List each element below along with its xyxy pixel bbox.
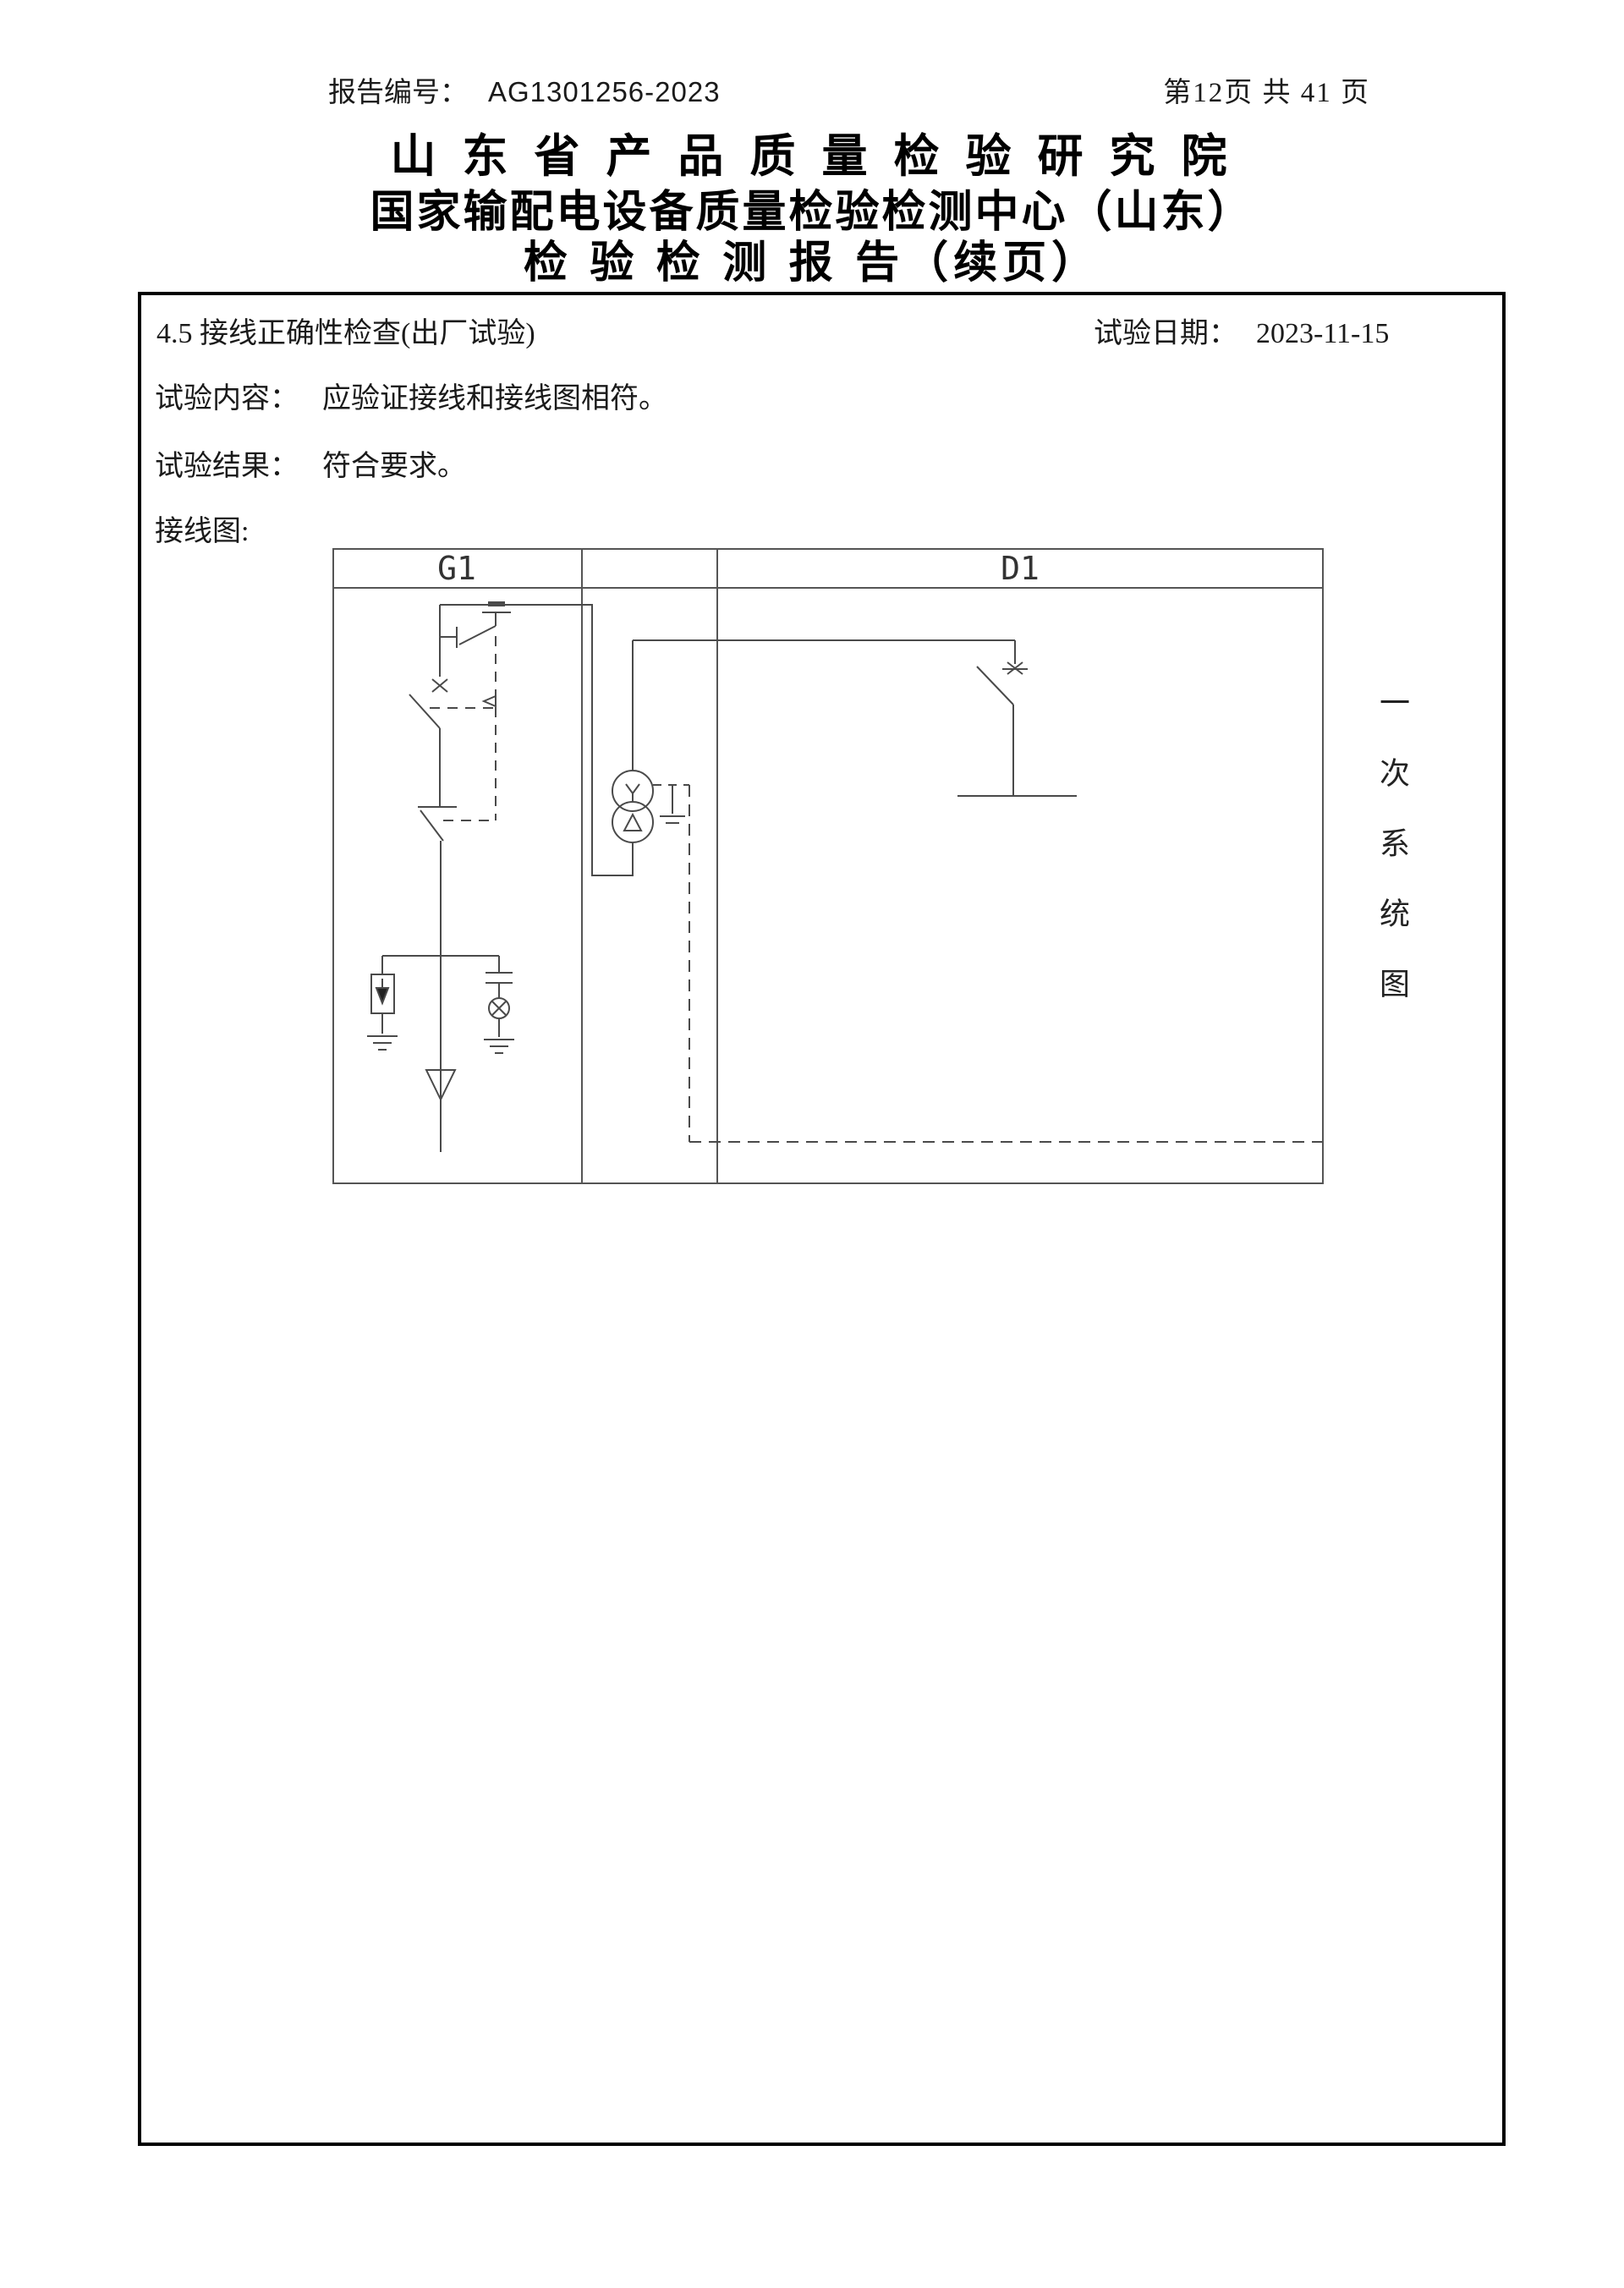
g1-top-ground-symbol	[482, 604, 511, 626]
switch-blade	[977, 667, 1013, 705]
d1-switch	[957, 640, 1077, 796]
panel-g1-label: G1	[437, 550, 476, 587]
interlock-arrow-marker	[484, 696, 496, 706]
page-number: 第12页 共 41 页	[1163, 69, 1370, 110]
g1-capacitor-indicator	[484, 956, 514, 1053]
g1-surge-arrester	[367, 956, 398, 1050]
page-header-left: 报告编号：AG1301256-2023	[328, 69, 721, 110]
wye-winding-symbol	[626, 784, 639, 801]
test-content-text: 应验证接线和接线图相符。	[322, 383, 667, 414]
test-date-label: 试验日期：	[1094, 318, 1237, 349]
wiring-diagram-label: 接线图:	[155, 508, 249, 549]
g1-feeder-line	[440, 605, 633, 875]
g1-outgoing-line	[382, 841, 499, 1152]
g1-main-switch	[409, 605, 447, 728]
secondary-dashed-line	[689, 785, 1322, 1142]
report-title-line3: 检 验 检 测 报 告（续页）	[0, 227, 1624, 290]
section-heading: 4.5 接线正确性检查(出厂试验)	[156, 310, 535, 351]
wiring-diagram: G1 D1	[332, 548, 1324, 1184]
ground-symbol	[484, 1040, 514, 1053]
vt-ground	[653, 785, 689, 823]
ground-symbol	[367, 1036, 398, 1050]
report-no-value: AG1301256-2023	[488, 76, 721, 107]
primary-system-diagram-label: 一次系统图	[1370, 687, 1414, 1038]
arrester-arrow	[376, 988, 388, 1003]
diagram-frame	[332, 548, 1324, 1184]
g1-earthing-switch	[440, 626, 496, 648]
test-content-row: 试验内容：应验证接线和接线图相符。	[155, 375, 667, 416]
g1-lower-switch	[418, 728, 457, 841]
switch-blade	[409, 694, 440, 728]
test-result-label: 试验结果：	[155, 451, 299, 482]
test-date-row: 试验日期：2023-11-15	[1094, 310, 1389, 351]
test-content-label: 试验内容：	[155, 383, 299, 414]
test-date-value: 2023-11-15	[1256, 318, 1389, 349]
switch-blade	[420, 810, 443, 841]
diagram-outer-border	[333, 549, 1323, 1183]
test-result-text: 符合要求。	[322, 451, 466, 482]
test-result-row: 试验结果：符合要求。	[155, 442, 466, 484]
panel-d1-label: D1	[1001, 550, 1040, 587]
report-no-label: 报告编号：	[328, 78, 468, 108]
voltage-transformer	[612, 640, 653, 842]
delta-winding-symbol	[624, 815, 641, 831]
